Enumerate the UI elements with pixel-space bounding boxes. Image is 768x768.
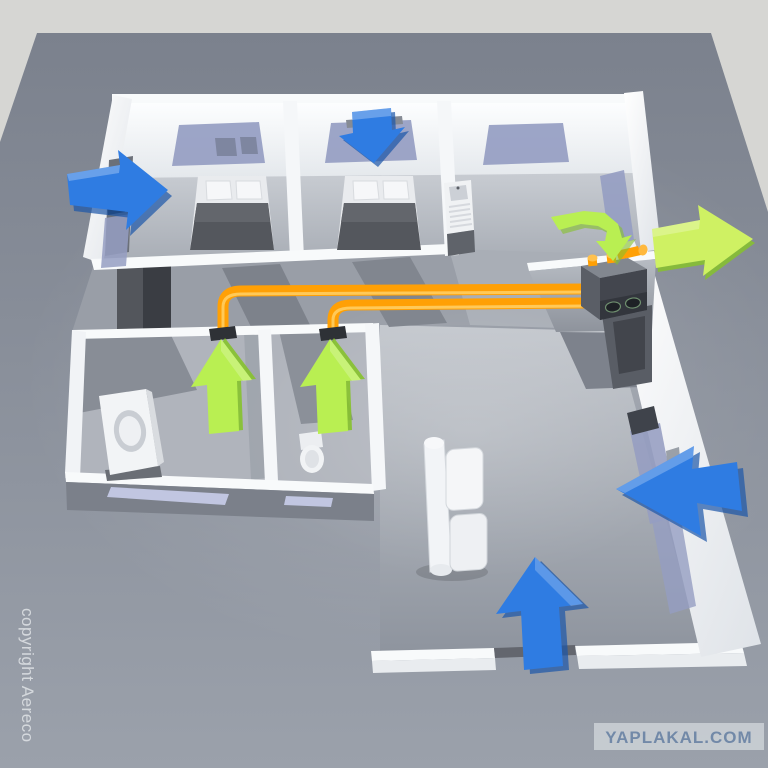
- badge-text: YAPLAKAL.COM: [605, 728, 752, 747]
- bed-2: [337, 176, 421, 250]
- site-watermark-badge: YAPLAKAL.COM: [594, 723, 764, 750]
- screenshot-root: copyright Aereco YAPLAKAL.COM: [0, 0, 768, 768]
- window-kitchen-north: [483, 123, 569, 165]
- unit-cap-1: [588, 255, 598, 262]
- north-wall-top: [112, 94, 634, 103]
- toilet: [299, 431, 324, 473]
- ventilation-diagram: copyright Aereco YAPLAKAL.COM: [0, 0, 768, 768]
- kitchen-sink: [444, 180, 475, 256]
- bed-1: [190, 176, 274, 250]
- window-west-wall: [101, 214, 130, 268]
- copyright-watermark: copyright Aereco: [18, 608, 37, 743]
